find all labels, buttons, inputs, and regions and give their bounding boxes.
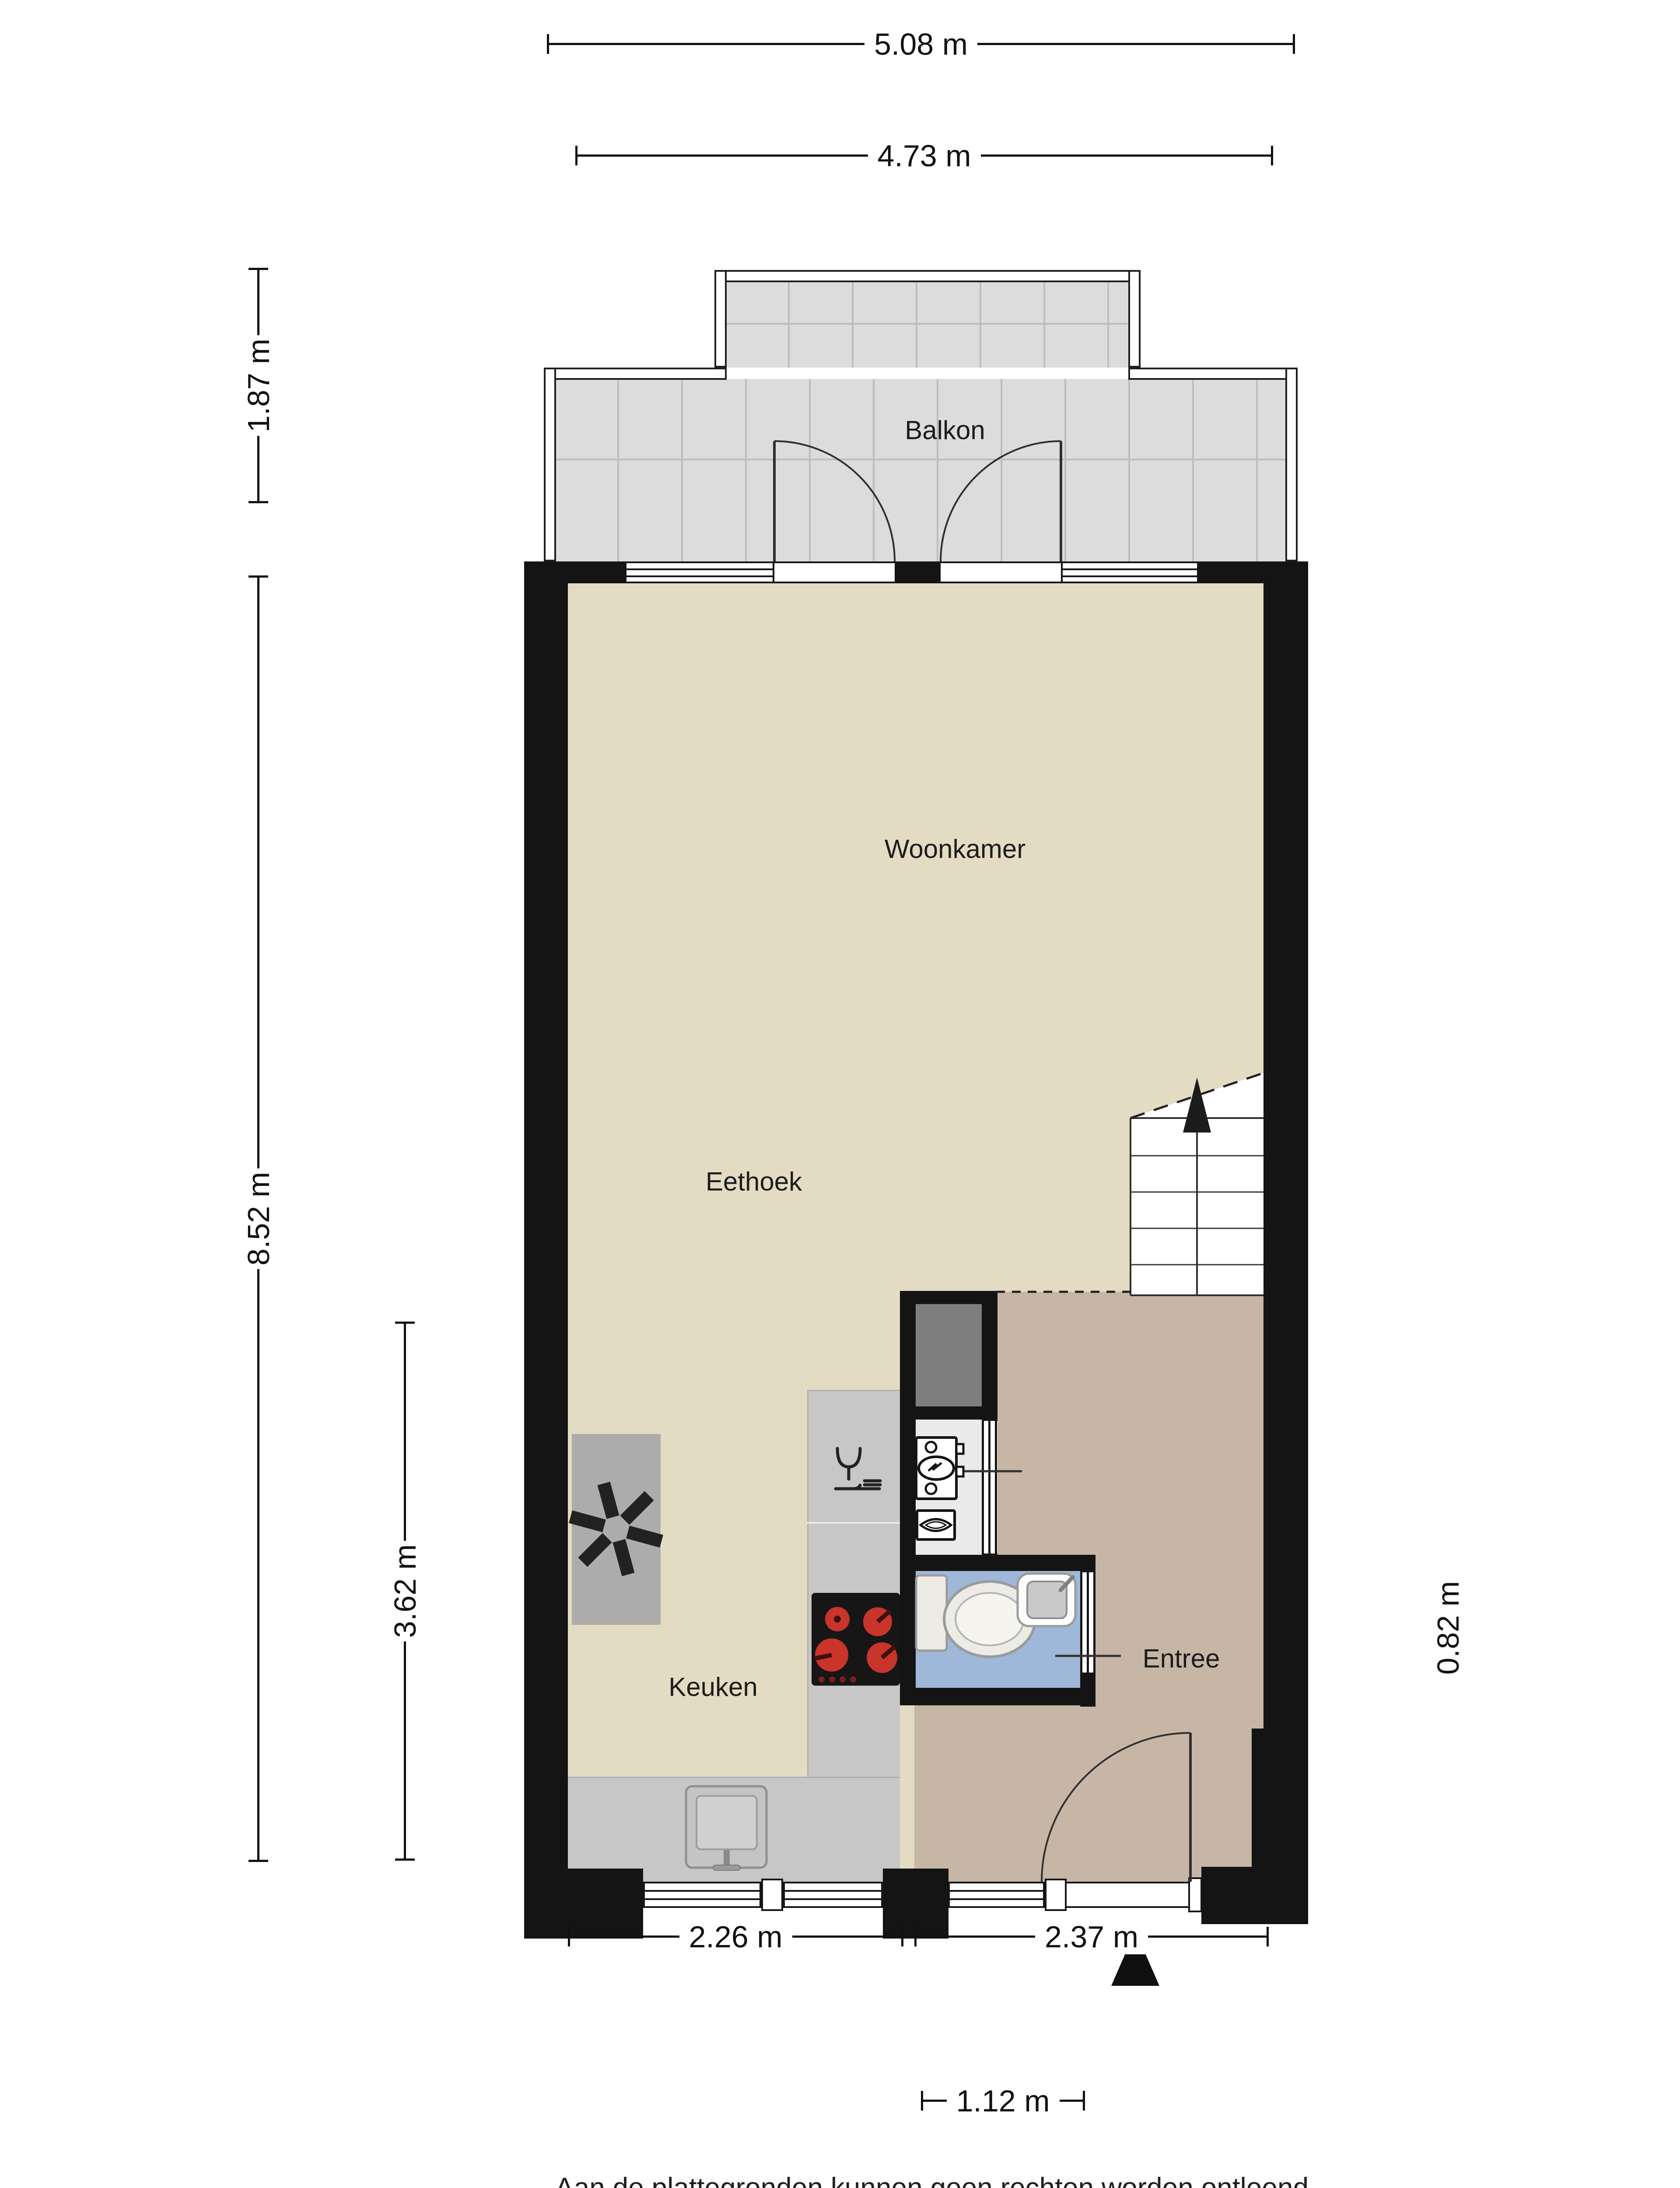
dimension-top-inner: 4.73 m [575,146,1273,165]
ventilation-fan-icon [570,1483,661,1574]
dishwasher-icon [836,1448,880,1489]
dimension-bottom-door: 1.12 m [921,2091,1085,2111]
stove-burners-icon [815,1607,897,1683]
balcony-door-right [941,441,1061,561]
dimension-left-main: 8.52 m [248,575,268,1862]
dimension-bottom-left: 2.26 m [568,1927,903,1946]
floor-plan: Balkon Woonkamer Eethoek Keuken Entree 5… [0,0,1680,2188]
dimension-label: 1.12 m [947,2083,1060,2118]
room-label-keuken: Keuken [668,1672,758,1702]
footer-disclaimer: Aan de plattegronden kunnen geen rechten… [555,2171,1309,2188]
dimension-label: 2.26 m [679,1919,792,1954]
dimension-label: 1.87 m [231,335,286,436]
dimension-bottom-right: 2.37 m [914,1927,1269,1946]
dimension-label: 3.62 m [378,1541,432,1641]
dimension-left-balcony: 1.87 m [248,268,268,503]
dimension-label: 2.37 m [1035,1919,1148,1954]
room-label-eethoek: Eethoek [706,1167,802,1197]
dimension-top-outer: 5.08 m [547,34,1295,54]
dimension-left-kitchen: 3.62 m [395,1322,415,1861]
electric-meter-icon [916,1438,963,1499]
dimension-label: 4.73 m [868,138,981,173]
staircase [1130,1073,1263,1295]
room-label-entree: Entree [1143,1644,1220,1674]
kitchen-sink-icon [686,1786,766,1870]
room-label-balkon: Balkon [905,415,985,445]
dimension-label: 8.52 m [231,1168,286,1269]
dimension-right-entry: 0.82 m [1431,1581,1466,1675]
gas-meter-icon [917,1511,955,1539]
balcony-door-left [774,441,895,561]
dimension-label: 5.08 m [864,27,977,62]
washbasin-icon [1018,1574,1075,1626]
room-label-woonkamer: Woonkamer [885,834,1025,864]
front-door [1042,1733,1190,1882]
